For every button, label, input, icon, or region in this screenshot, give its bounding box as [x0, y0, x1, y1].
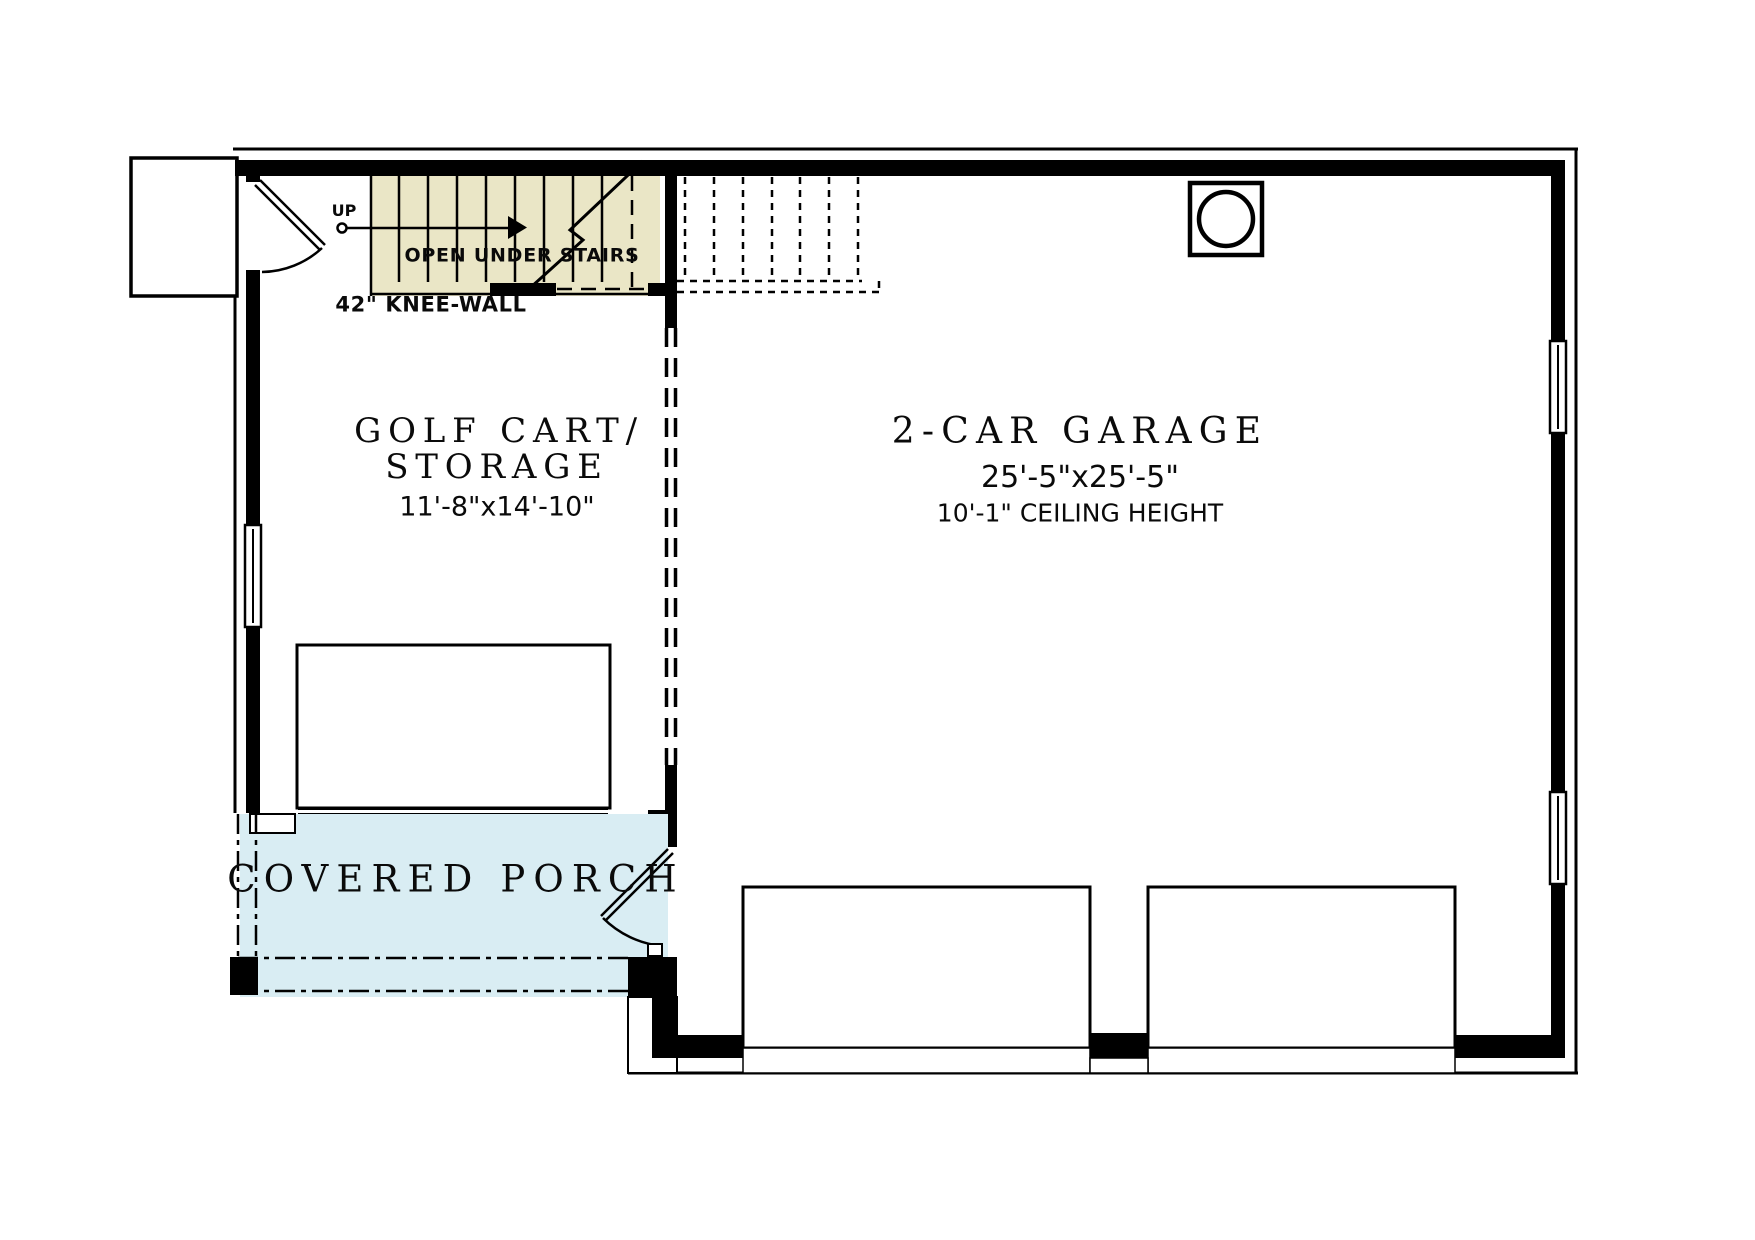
window-east-upper [1550, 341, 1566, 433]
floor-plan: GOLF CART/ STORAGE 11'-8"x14'-10" 2-CAR … [0, 0, 1755, 1240]
wall-east [1551, 160, 1565, 1058]
door-jamb [648, 944, 662, 956]
wall-west-lower [246, 625, 260, 813]
covered-porch [230, 814, 677, 1073]
storage-porch-threshold [298, 809, 608, 814]
window-west [245, 525, 261, 627]
porch-title: COVERED PORCH [227, 861, 685, 898]
water-heater-icon [1190, 183, 1262, 255]
plan-linework [0, 0, 1755, 1240]
window-east-lower [1550, 792, 1566, 884]
storage-room-size: 11'-8"x14'-10" [399, 494, 594, 521]
storage-room-title: GOLF CART/ [354, 414, 644, 448]
wall-west-corner [246, 160, 260, 182]
storage-room-title-2: STORAGE [385, 450, 609, 484]
golf-cart-door [297, 645, 610, 808]
garage-room-title: 2-CAR GARAGE [892, 414, 1268, 450]
stairs-upper-dashed [677, 177, 880, 292]
open-under-stairs-label: OPEN UNDER STAIRS [404, 247, 639, 266]
porch-post-se [628, 957, 677, 997]
up-label: UP [332, 203, 357, 219]
wall-west-upper [246, 270, 260, 526]
porch-fill [240, 814, 668, 997]
porch-post-sw [230, 957, 258, 995]
garage-door-right [1148, 887, 1455, 1048]
entry-door [255, 180, 325, 272]
entry-stoop [131, 158, 237, 296]
garage-ceiling-height: 10'-1" CEILING HEIGHT [937, 501, 1223, 526]
wall-north [235, 160, 1565, 176]
knee-wall-label: 42" KNEE-WALL [335, 295, 526, 316]
garage-room-size: 25'-5"x25'-5" [981, 463, 1179, 493]
garage-door-left [743, 887, 1090, 1048]
garage-door-pier [1090, 1033, 1148, 1060]
